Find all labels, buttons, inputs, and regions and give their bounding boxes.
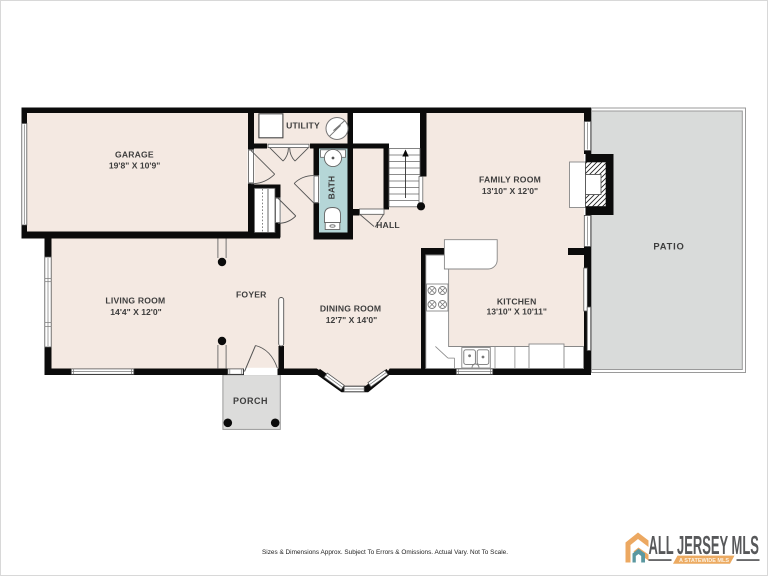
svg-text:12'7" X 14'0": 12'7" X 14'0" [326, 315, 377, 325]
svg-text:KITCHEN: KITCHEN [497, 296, 537, 306]
svg-text:A STATEWIDE MLS: A STATEWIDE MLS [679, 558, 729, 564]
svg-text:FAMILY ROOM: FAMILY ROOM [479, 174, 541, 184]
svg-text:HALL: HALL [376, 220, 400, 230]
svg-text:BATH: BATH [327, 176, 337, 200]
svg-text:13'10" X 12'0": 13'10" X 12'0" [482, 186, 538, 196]
svg-text:LIVING ROOM: LIVING ROOM [105, 296, 165, 306]
svg-text:PORCH: PORCH [233, 396, 268, 406]
svg-text:19'8" X 10'9": 19'8" X 10'9" [109, 161, 160, 171]
svg-text:UTILITY: UTILITY [286, 120, 320, 130]
svg-text:ALL JERSEY MLS: ALL JERSEY MLS [649, 531, 759, 560]
svg-text:13'10" X 10'11": 13'10" X 10'11" [486, 307, 547, 317]
svg-text:PATIO: PATIO [653, 240, 684, 251]
svg-text:Sizes & Dimensions Approx. Sub: Sizes & Dimensions Approx. Subject To Er… [262, 549, 508, 556]
svg-text:GARAGE: GARAGE [115, 150, 154, 160]
svg-text:14'4" X 12'0": 14'4" X 12'0" [110, 307, 161, 317]
svg-text:DINING ROOM: DINING ROOM [320, 304, 381, 314]
svg-text:FOYER: FOYER [236, 290, 267, 300]
